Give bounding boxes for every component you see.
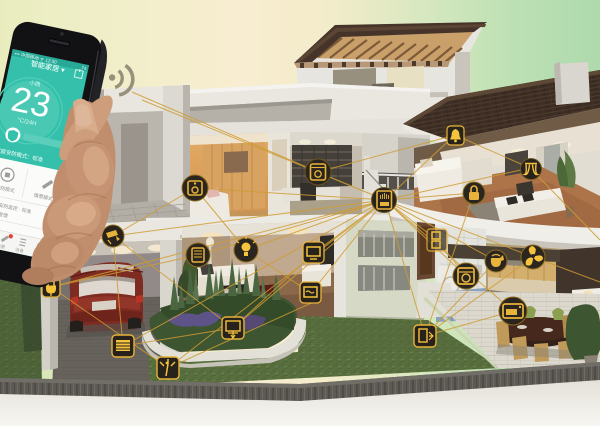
svg-text:23: 23 bbox=[8, 79, 54, 125]
